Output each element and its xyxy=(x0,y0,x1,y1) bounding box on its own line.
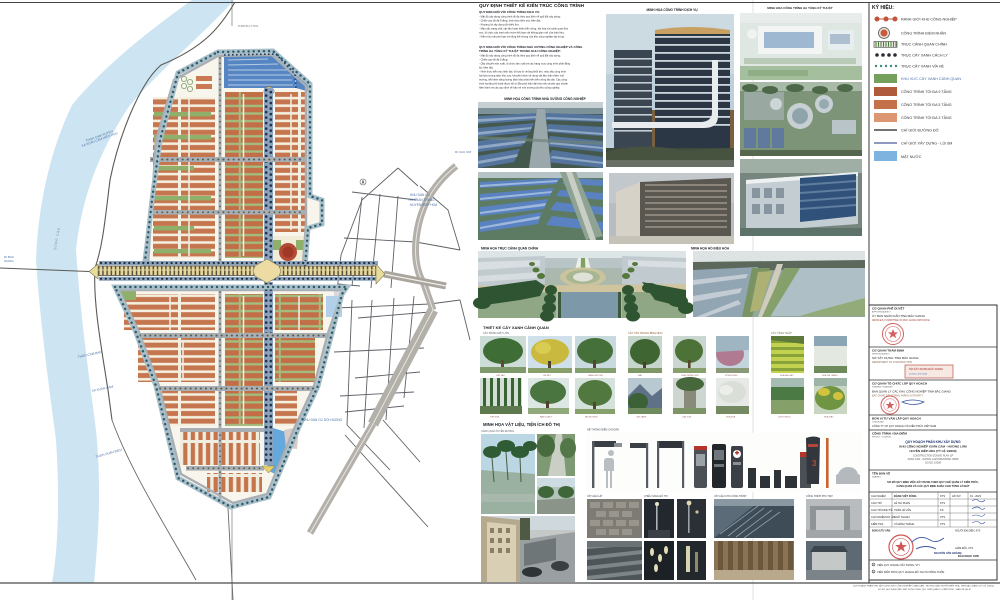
svg-text:VÔNG ĐỒNG: VÔNG ĐỒNG xyxy=(725,374,738,377)
svg-text:CHỈ GIỚI XÂY DỰNG - LÙI 6M: CHỈ GIỚI XÂY DỰNG - LÙI 6M xyxy=(901,141,952,146)
svg-text:DI CAU VAT: DI CAU VAT xyxy=(455,150,472,154)
svg-text:CẢNH QUAN TUYẾN ĐƯỜNG: CẢNH QUAN TUYẾN ĐƯỜNG xyxy=(481,430,514,433)
svg-text:SẤU: SẤU xyxy=(638,374,643,377)
svg-text:MINH HỌA CÔNG TRÌNH DỊCH VỤ: MINH HỌA CÔNG TRÌNH DỊCH VỤ xyxy=(646,7,698,12)
svg-text:TRỤC CÂY XANH VỈA HÈ: TRỤC CÂY XANH VỈA HÈ xyxy=(901,64,945,69)
svg-text:CÔNG TRÌNH TỐI ĐA 5 TẦNG: CÔNG TRÌNH TỐI ĐA 5 TẦNG xyxy=(901,102,952,107)
svg-text:- Chiều cao tối đa 5 tầng;: - Chiều cao tối đa 5 tầng; xyxy=(479,58,508,62)
svg-text:CÔNG TRÌNH ĐIỂM NHẤN: CÔNG TRÌNH ĐIỂM NHẤN xyxy=(901,31,946,36)
svg-text:HUYEN HIEP HOA: HUYEN HIEP HOA xyxy=(410,203,438,207)
svg-text:PUMP B12 3 TR.M: PUMP B12 3 TR.M xyxy=(238,25,258,28)
svg-text:TRÌNH HẠ TẦNG KỸ THUẬT TRONG K: TRÌNH HẠ TẦNG KỸ THUẬT TRONG KHU CÔNG NG… xyxy=(479,48,561,53)
svg-text:CÔNG TRÌNH / ĐỊA ĐIỂM: CÔNG TRÌNH / ĐỊA ĐIỂM xyxy=(872,431,907,436)
svg-text:trình hạ tầng kỹ thuật được bố: trình hạ tầng kỹ thuật được bố trí đồng … xyxy=(479,82,569,86)
svg-text:trường, tiết kiệm năng lượng đ: trường, tiết kiệm năng lượng đảm bảo phá… xyxy=(479,78,567,82)
svg-text:PLANNING ORGANIZER: PLANNING ORGANIZER xyxy=(872,386,893,389)
svg-text:LIM SÉT: LIM SÉT xyxy=(543,374,552,377)
svg-text:TÊN BẢN VẼ: TÊN BẢN VẼ xyxy=(872,471,890,476)
svg-text:HOA ĐÀO BẠT: HOA ĐÀO BẠT xyxy=(780,374,794,377)
svg-text:hài hòa chung toàn khu vực, kh: hài hòa chung toàn khu vực, khuyến khích… xyxy=(479,74,564,78)
svg-text:CÔNG TRÌNH TỐI ĐA 3 TẦNG: CÔNG TRÌNH TỐI ĐA 3 TẦNG xyxy=(901,115,952,120)
svg-text:KTS: KTS xyxy=(940,522,945,526)
svg-text:CHẸO BÔNG GÒN: CHẸO BÔNG GÒN xyxy=(681,374,699,377)
svg-text:KTS: KTS xyxy=(940,494,945,498)
svg-text:BẰNG LĂNG: BẰNG LĂNG xyxy=(540,416,552,419)
svg-text:KHU DAN CU DOI HUONG: KHU DAN CU DOI HUONG xyxy=(303,418,343,422)
svg-text:SCALE 1/2000: SCALE 1/2000 xyxy=(925,462,941,465)
svg-text:HOA GIẤY: HOA GIẤY xyxy=(824,416,834,419)
svg-text:HOA SỮA: HOA SỮA xyxy=(726,416,736,419)
svg-text:SƠ ĐỒ QUY ĐỊNH VIỆC XÂY DỰNG T: SƠ ĐỒ QUY ĐỊNH VIỆC XÂY DỰNG THEO QUY CH… xyxy=(878,588,972,591)
svg-text:TRỤC CẢNH QUAN CHÍNH: TRỤC CẢNH QUAN CHÍNH xyxy=(901,42,947,47)
svg-text:VẬT LIỆU LÁT: VẬT LIỆU LÁT xyxy=(587,495,603,498)
svg-text:RANH GIỚI KHU CÔNG NGHIỆP: RANH GIỚI KHU CÔNG NGHIỆP xyxy=(901,17,957,22)
svg-text:VẬT LIỆU CHO CÔNG TRÌNH: VẬT LIỆU CHO CÔNG TRÌNH xyxy=(714,495,747,498)
svg-text:CHUỖI NGỌC: CHUỖI NGỌC xyxy=(778,416,792,419)
svg-text:- Mật độ xây dựng công trình t: - Mật độ xây dựng công trình tối đa theo… xyxy=(479,15,561,19)
svg-text:ĐƠN VỊ TƯ VẤN: ĐƠN VỊ TƯ VẤN xyxy=(872,530,891,533)
svg-text:PROJECT / LOCATION: PROJECT / LOCATION xyxy=(872,436,892,439)
svg-text:SỞ XÂY DỰNG TỈNH BẮC GIANG: SỞ XÂY DỰNG TỈNH BẮC GIANG xyxy=(872,355,919,360)
svg-text:- Chiều cao tối đa 9 tầng, hìn: - Chiều cao tối đa 9 tầng, hình thức kiế… xyxy=(479,19,541,23)
svg-text:QUY ĐỊNH THIẾT KẾ KIẾN TRÚC CÔ: QUY ĐỊNH THIẾT KẾ KIẾN TRÚC CÔNG TRÌNH xyxy=(479,1,585,8)
svg-text:bộ, hiện đại;: bộ, hiện đại; xyxy=(479,66,493,70)
svg-text:3: 3 xyxy=(812,459,817,468)
svg-text:ĐƠN VỊ TƯ VẤN LẬP QUY HOẠCH: ĐƠN VỊ TƯ VẤN LẬP QUY HOẠCH xyxy=(872,416,921,421)
svg-text:BAC GIANG INDUSTRIAL PARKS AUT: BAC GIANG INDUSTRIAL PARKS AUTHORITY xyxy=(872,395,924,398)
svg-text:CONSULTANT: CONSULTANT xyxy=(872,421,885,424)
svg-text:MINH HỌA CÔNG TRÌNH HẠ TẦNG KỸ: MINH HỌA CÔNG TRÌNH HẠ TẦNG KỸ THUẬT xyxy=(767,5,833,10)
svg-text:THI TRAN THANG: THI TRAN THANG xyxy=(408,198,435,202)
svg-text:CÂY SAO: CÂY SAO xyxy=(496,374,505,377)
svg-text:hiện hành và các quy định về b: hiện hành và các quy định về bảo vệ môi … xyxy=(479,86,560,90)
svg-text:KHU CÔNG NGHIỆP XUÂN CẨM - HƯƠ: KHU CÔNG NGHIỆP XUÂN CẨM - HƯƠNG LÂM xyxy=(899,444,967,449)
svg-text:MUỒNG ĐEN: MUỒNG ĐEN xyxy=(585,416,598,419)
svg-text:HOA CẢI TRẮNG: HOA CẢI TRẮNG xyxy=(822,374,838,377)
svg-text:- Kiến trúc mái phù hợp với tổ: - Kiến trúc mái phù hợp với tổng thể chu… xyxy=(479,35,565,39)
svg-text:KHU VỰC CÂY XANH CẢNH QUAN: KHU VỰC CÂY XANH CẢNH QUAN xyxy=(901,76,961,81)
svg-text:MINH HỌA CÔNG TRÌNH NHÀ XƯỞNG: MINH HỌA CÔNG TRÌNH NHÀ XƯỞNG CÔNG NGHIỆ… xyxy=(504,96,586,101)
svg-text:CƠ QUAN PHÊ DUYỆT: CƠ QUAN PHÊ DUYỆT xyxy=(872,306,905,311)
svg-text:GIÁM ĐỐC, KTS: GIÁM ĐỐC, KTS xyxy=(955,547,973,550)
svg-text:KÝ HIỆU:: KÝ HIỆU: xyxy=(872,3,894,11)
svg-text:CHIẾU SÁNG ĐÔ THỊ: CHIẾU SÁNG ĐÔ THỊ xyxy=(644,495,668,498)
svg-text:PEOPLE'S COMMITTEE OF BAC GIAN: PEOPLE'S COMMITTEE OF BAC GIANG PROVINCE xyxy=(872,319,930,322)
svg-text:KHU DAN CU: KHU DAN CU xyxy=(410,193,431,197)
svg-text:vực, tổ chức cây xanh sân vườn: vực, tổ chức cây xanh sân vườn kết hợp v… xyxy=(479,31,565,35)
svg-text:CÔNG TRÌNH PHỤ TRỢ: CÔNG TRÌNH PHỤ TRỢ xyxy=(806,495,833,498)
svg-text:QUY ĐỊNH ĐỐI VỚI CÔNG TRÌNH DỊ: QUY ĐỊNH ĐỐI VỚI CÔNG TRÌNH DỊCH VỤ: xyxy=(479,9,540,14)
svg-text:GIANG: GIANG xyxy=(4,259,14,263)
svg-text:01 - 2023: 01 - 2023 xyxy=(970,494,982,498)
svg-text:- Mật độ xây dựng công trình t: - Mật độ xây dựng công trình tối đa theo… xyxy=(479,54,561,58)
svg-text:DEPARTMENT OF CONSTRUCTION: DEPARTMENT OF CONSTRUCTION xyxy=(872,361,912,364)
svg-text:DRAWING: DRAWING xyxy=(872,476,881,479)
svg-text:- Dây chuyền sản xuất, tổ chức: - Dây chuyền sản xuất, tổ chức sản xuất … xyxy=(479,62,571,66)
svg-text:KTS: KTS xyxy=(940,515,945,519)
svg-text:CƠ QUAN TỔ CHỨC LẬP QUY HOẠCH: CƠ QUAN TỔ CHỨC LẬP QUY HOẠCH xyxy=(872,381,927,386)
svg-text:TRỤC CÂY XANH CÁCH LY: TRỤC CÂY XANH CÁCH LY xyxy=(901,53,948,58)
svg-text:KS: KS xyxy=(940,508,944,512)
svg-text:NGƯỜI ĐẠI DIỆN, KTS: NGƯỜI ĐẠI DIỆN, KTS xyxy=(955,530,981,533)
svg-text:CAU VUA: CAU VUA xyxy=(682,416,692,419)
svg-text:MẶT NƯỚC: MẶT NƯỚC xyxy=(901,154,922,159)
svg-text:CƠ QUAN THẨM ĐỊNH: CƠ QUAN THẨM ĐỊNH xyxy=(872,348,904,353)
svg-text:CÂY XANH: CÂY XANH xyxy=(636,416,647,419)
svg-text:TRE NGÀ: TRE NGÀ xyxy=(490,416,500,419)
svg-text:QUY HOẠCH PHÂN KHU XÂY DỰNG KH: QUY HOẠCH PHÂN KHU XÂY DỰNG KHU CÔNG NGH… xyxy=(853,585,994,588)
svg-text:QUY HOẠCH PHÂN KHU XÂY DỰNG: QUY HOẠCH PHÂN KHU XÂY DỰNG xyxy=(905,439,961,444)
svg-text:CHỈ GIỚI ĐƯỜNG ĐỎ: CHỈ GIỚI ĐƯỜNG ĐỎ xyxy=(901,128,939,133)
svg-text:MINH HỌA TRỤC CẢNH QUAN CHÍNH: MINH HỌA TRỤC CẢNH QUAN CHÍNH xyxy=(481,246,539,251)
svg-text:- Khoảng lùi xây dựng tối thiể: - Khoảng lùi xây dựng tối thiểu 6m; xyxy=(479,23,520,27)
svg-text:THIẾT KẾ CÂY XANH CẢNH QUAN: THIẾT KẾ CÂY XANH CẢNH QUAN xyxy=(483,325,549,330)
svg-text:GIÁNG HƯƠNG: GIÁNG HƯƠNG xyxy=(588,374,603,377)
svg-text:đã thẩm định 2023: đã thẩm định 2023 xyxy=(909,373,928,376)
svg-text:ỦY BAN NHÂN DÂN TỈNH BẮC GIANG: ỦY BAN NHÂN DÂN TỈNH BẮC GIANG xyxy=(872,313,926,318)
svg-text:CÔNG TRÌNH TỐI ĐA 9 TẦNG: CÔNG TRÌNH TỐI ĐA 9 TẦNG xyxy=(901,89,952,94)
svg-text:MINH HỌA HỒ ĐIỀU HÒA: MINH HỌA HỒ ĐIỀU HÒA xyxy=(691,246,730,251)
svg-text:BAN QUẢN LÝ CÁC KHU CÔNG NGHIỆ: BAN QUẢN LÝ CÁC KHU CÔNG NGHIỆP TỈNH BẮC… xyxy=(872,389,952,394)
svg-text:HUYỆN HIỆP HÒA (TỶ LỆ 1/2000): HUYỆN HIỆP HÒA (TỶ LỆ 1/2000) xyxy=(909,448,956,453)
svg-text:MINH HỌA VẬT LIỆU, TIỆN ÍCH ĐÔ: MINH HỌA VẬT LIỆU, TIỆN ÍCH ĐÔ THỊ xyxy=(483,422,560,427)
svg-text:KTS: KTS xyxy=(940,501,945,505)
